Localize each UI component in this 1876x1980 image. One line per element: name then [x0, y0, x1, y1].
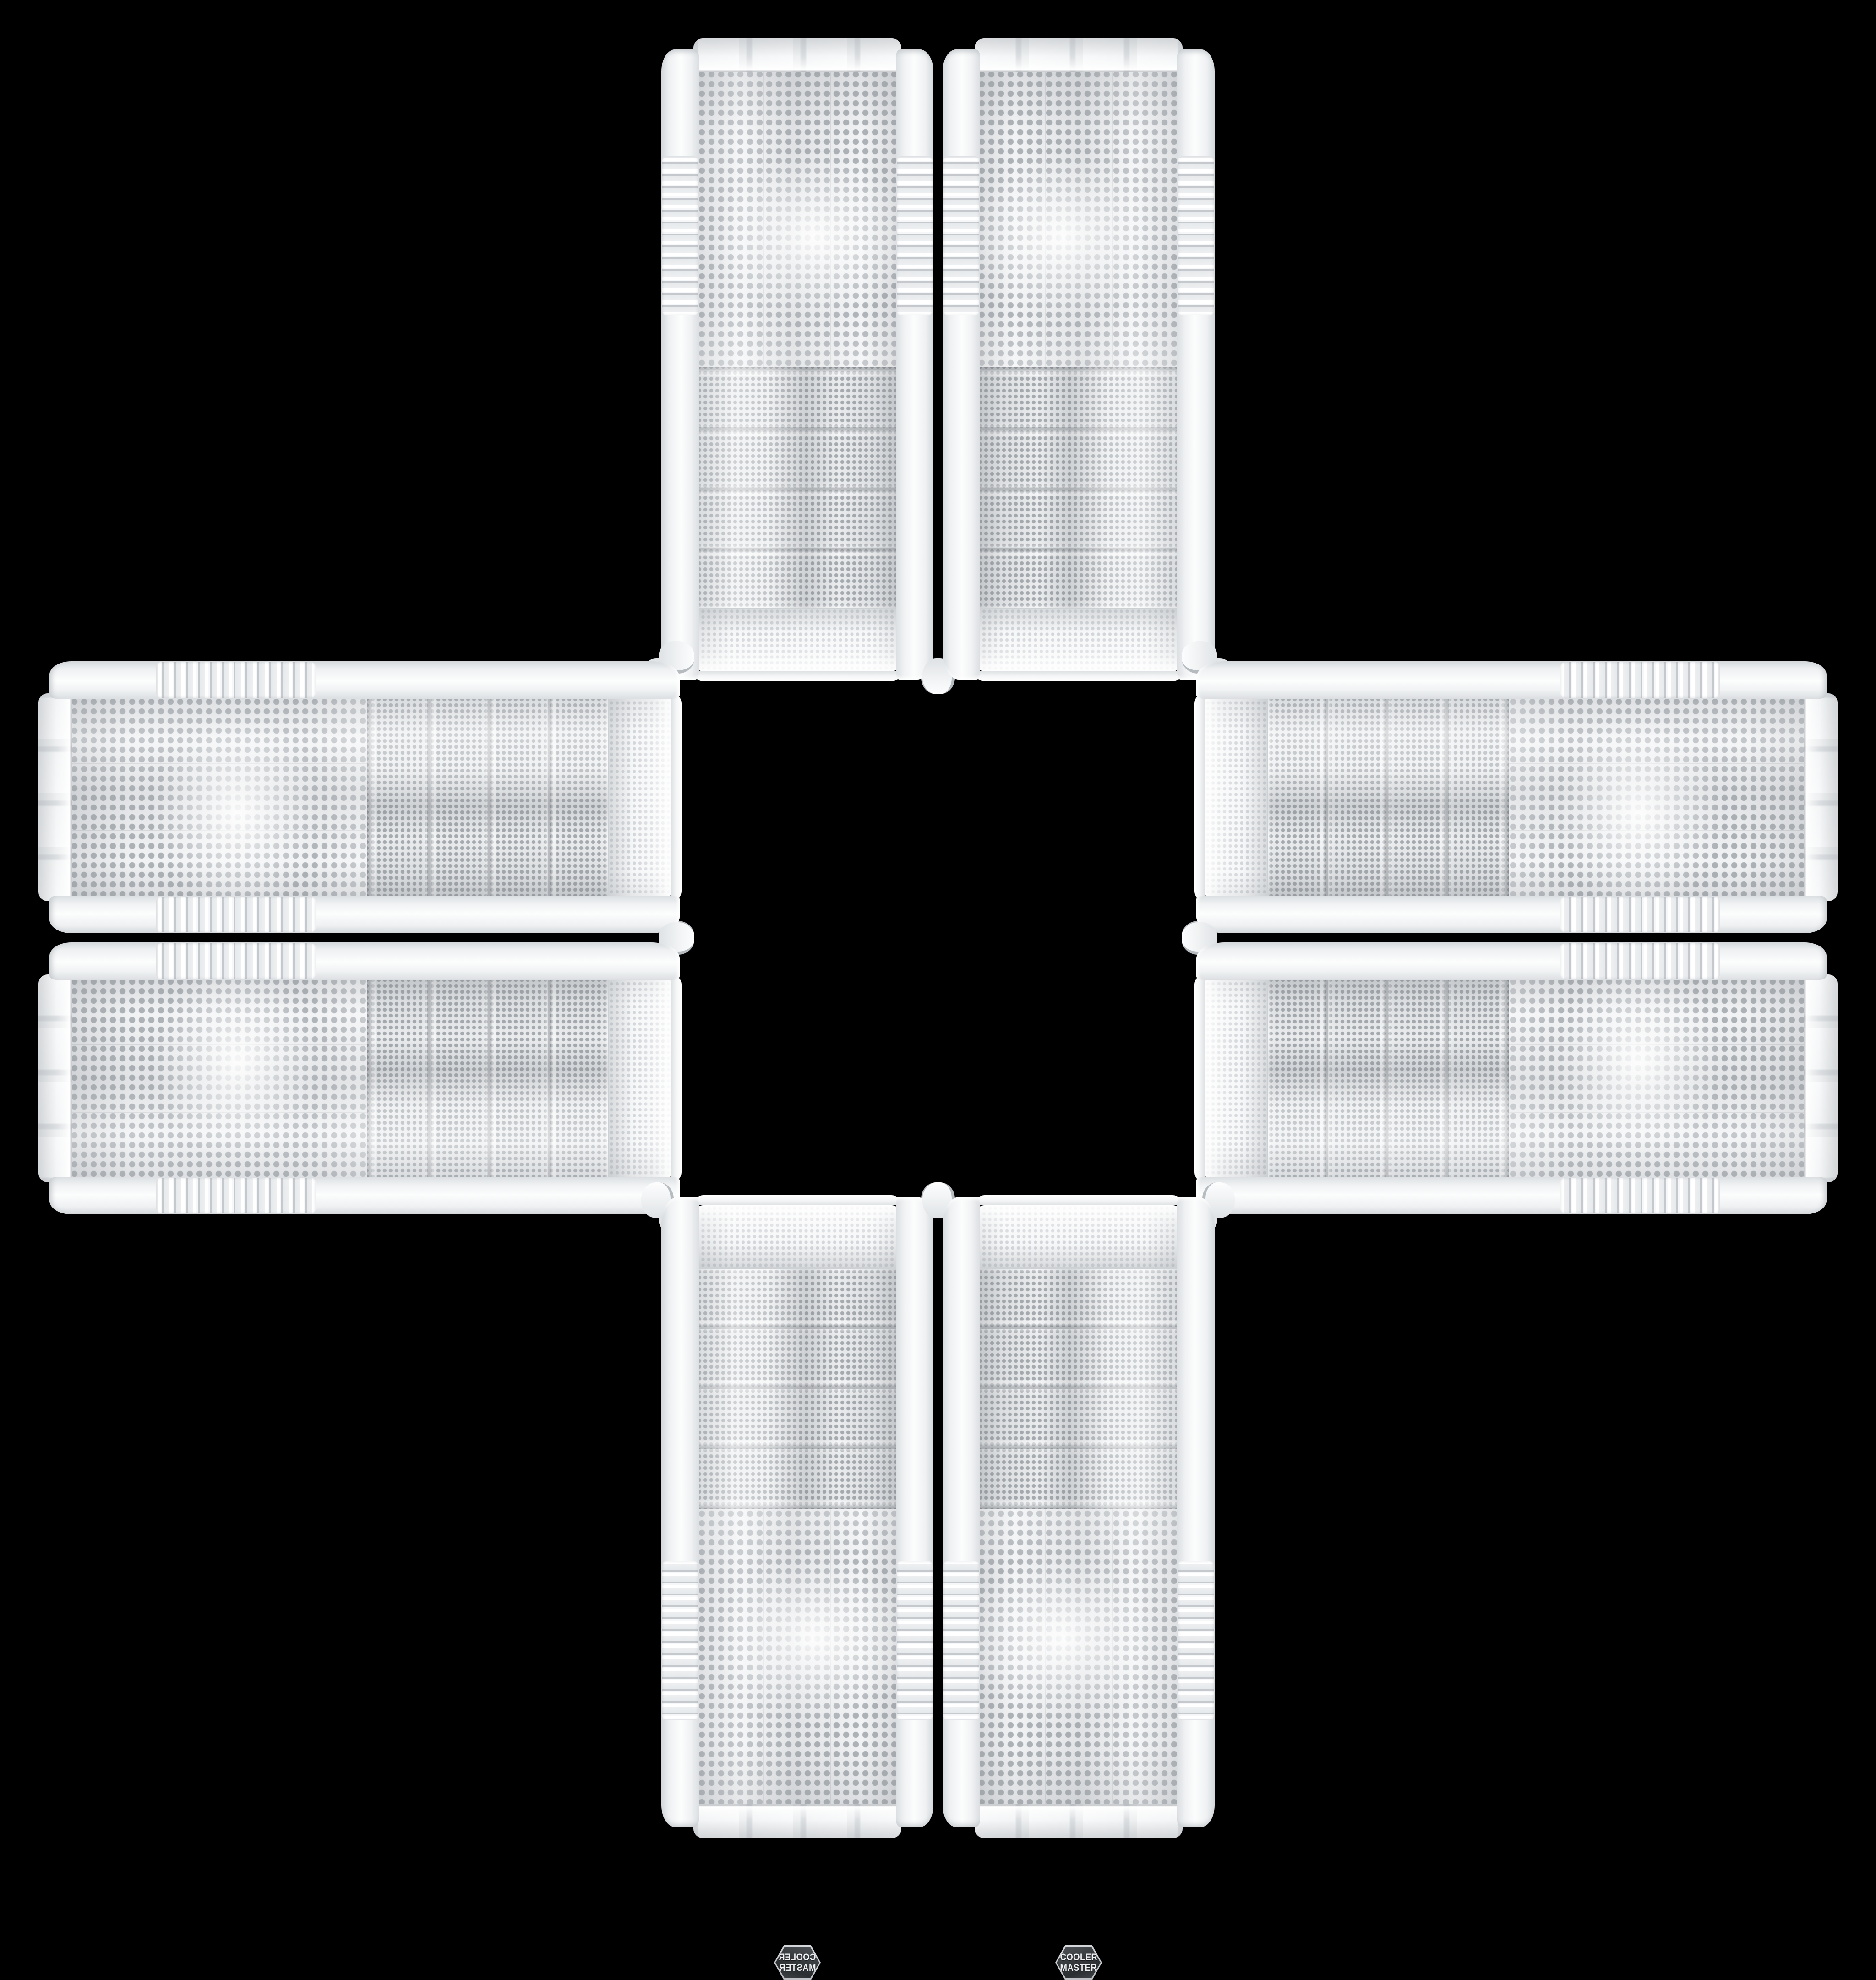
drive-bay-mesh	[696, 367, 899, 608]
pc-case-top-left: COOLER MASTER	[662, 38, 933, 688]
front-panel: COOLER MASTER	[943, 1189, 1214, 1839]
cooler-master-badge-face: COOLER MASTER	[775, 1947, 819, 1978]
rail-ribs	[897, 1561, 933, 1720]
bottom-bezel	[1804, 974, 1838, 1182]
rail-ribs	[662, 1561, 698, 1720]
mesh-top-bulge	[608, 694, 671, 900]
rail-ribs	[156, 1178, 316, 1213]
cooler-master-badge-face: COOLER MASTER	[1057, 1947, 1101, 1978]
drive-bay-mesh	[977, 367, 1180, 608]
side-rail-left	[896, 49, 933, 680]
drive-bay-mesh	[977, 1269, 1180, 1509]
drive-bay-mesh	[367, 696, 608, 898]
bottom-bezel	[975, 38, 1183, 72]
fan-mesh: COOLER MASTER	[696, 72, 899, 367]
badge-text-line2: MASTER	[1060, 1963, 1097, 1973]
fan-mesh: COOLER MASTER	[977, 72, 1180, 367]
front-panel: COOLER MASTER	[38, 662, 688, 932]
rail-ribs	[156, 897, 316, 932]
side-rail-left	[896, 1197, 933, 1827]
badge-text-line1: COOLER	[1060, 1952, 1097, 1963]
rail-ribs	[1178, 1561, 1214, 1720]
fan-mesh: COOLER MASTER	[696, 1509, 899, 1804]
mesh-top-bulge	[694, 608, 900, 671]
rail-ribs	[1560, 662, 1720, 698]
rail-ribs	[1178, 156, 1214, 315]
side-rail-left	[1196, 896, 1827, 933]
front-panel: COOLER MASTER	[662, 38, 933, 688]
fan-mesh: COOLER MASTER	[1509, 977, 1804, 1180]
top-rim	[975, 671, 1183, 681]
rail-ribs	[156, 662, 316, 698]
cooler-master-badge: COOLER MASTER	[1055, 1945, 1102, 1980]
mesh-top-bulge	[1205, 975, 1268, 1181]
side-rail-right	[661, 49, 699, 680]
bottom-bezel	[693, 38, 901, 72]
mesh-top-bulge	[694, 1205, 900, 1269]
top-rim	[693, 671, 901, 681]
pc-case-left-bottom: COOLER MASTER	[38, 943, 688, 1213]
fan-mesh: COOLER MASTER	[72, 696, 367, 898]
badge-text-line2: MASTER	[779, 1963, 816, 1973]
mesh-top-bulge	[1205, 694, 1268, 900]
side-rail-right	[1177, 49, 1215, 680]
side-rail-right	[661, 1197, 699, 1827]
top-rim	[671, 693, 682, 901]
front-panel: COOLER MASTER	[662, 1189, 933, 1839]
side-rail-right	[1196, 661, 1827, 699]
top-rim	[975, 1195, 1183, 1205]
fan-mesh: COOLER MASTER	[72, 977, 367, 1180]
bottom-bezel	[38, 974, 72, 1182]
top-rim	[1194, 974, 1205, 1182]
side-rail-right	[1196, 1177, 1827, 1214]
front-panel: COOLER MASTER	[943, 38, 1214, 688]
top-rim	[1194, 693, 1205, 901]
front-panel: COOLER MASTER	[1188, 943, 1838, 1213]
rail-ribs	[897, 156, 933, 315]
drive-bay-mesh	[1268, 696, 1509, 898]
top-rim	[671, 974, 682, 1182]
fan-mesh: COOLER MASTER	[977, 1509, 1180, 1804]
drive-bay-mesh	[696, 1269, 899, 1509]
side-rail-left	[1196, 942, 1827, 980]
collage-canvas: COOLER MASTER COOLER	[0, 0, 1876, 1876]
rail-ribs	[1560, 1178, 1720, 1213]
side-rail-left	[49, 942, 680, 980]
rail-ribs	[156, 943, 316, 979]
side-rail-right	[1177, 1197, 1215, 1827]
pc-case-top-right: COOLER MASTER	[943, 38, 1214, 688]
top-rim	[693, 1195, 901, 1205]
cooler-master-badge: COOLER MASTER	[774, 1945, 821, 1980]
side-rail-right	[49, 1177, 680, 1214]
pc-case-left-top: COOLER MASTER	[38, 662, 688, 932]
mesh-top-bulge	[976, 608, 1182, 671]
side-rail-left	[943, 1197, 980, 1827]
side-rail-left	[49, 896, 680, 933]
badge-text-line1: COOLER	[779, 1952, 816, 1963]
front-panel: COOLER MASTER	[1188, 662, 1838, 932]
side-rail-left	[943, 49, 980, 680]
mesh-top-bulge	[976, 1205, 1182, 1269]
rail-ribs	[662, 156, 698, 315]
bottom-bezel	[38, 693, 72, 901]
front-panel: COOLER MASTER	[38, 943, 688, 1213]
drive-bay-mesh	[367, 977, 608, 1180]
bottom-bezel	[1804, 693, 1838, 901]
pc-case-bottom-left: COOLER MASTER	[662, 1189, 933, 1839]
mesh-top-bulge	[608, 975, 671, 1181]
bottom-bezel	[693, 1804, 901, 1838]
fan-mesh: COOLER MASTER	[1509, 696, 1804, 898]
rail-ribs	[1560, 897, 1720, 932]
drive-bay-mesh	[1268, 977, 1509, 1180]
rail-ribs	[943, 1561, 979, 1720]
rail-ribs	[943, 156, 979, 315]
pc-case-bottom-right: COOLER MASTER	[943, 1189, 1214, 1839]
pc-case-right-bottom: COOLER MASTER	[1188, 943, 1838, 1213]
bottom-bezel	[975, 1804, 1183, 1838]
side-rail-right	[49, 661, 680, 699]
pc-case-right-top: COOLER MASTER	[1188, 662, 1838, 932]
rail-ribs	[1560, 943, 1720, 979]
